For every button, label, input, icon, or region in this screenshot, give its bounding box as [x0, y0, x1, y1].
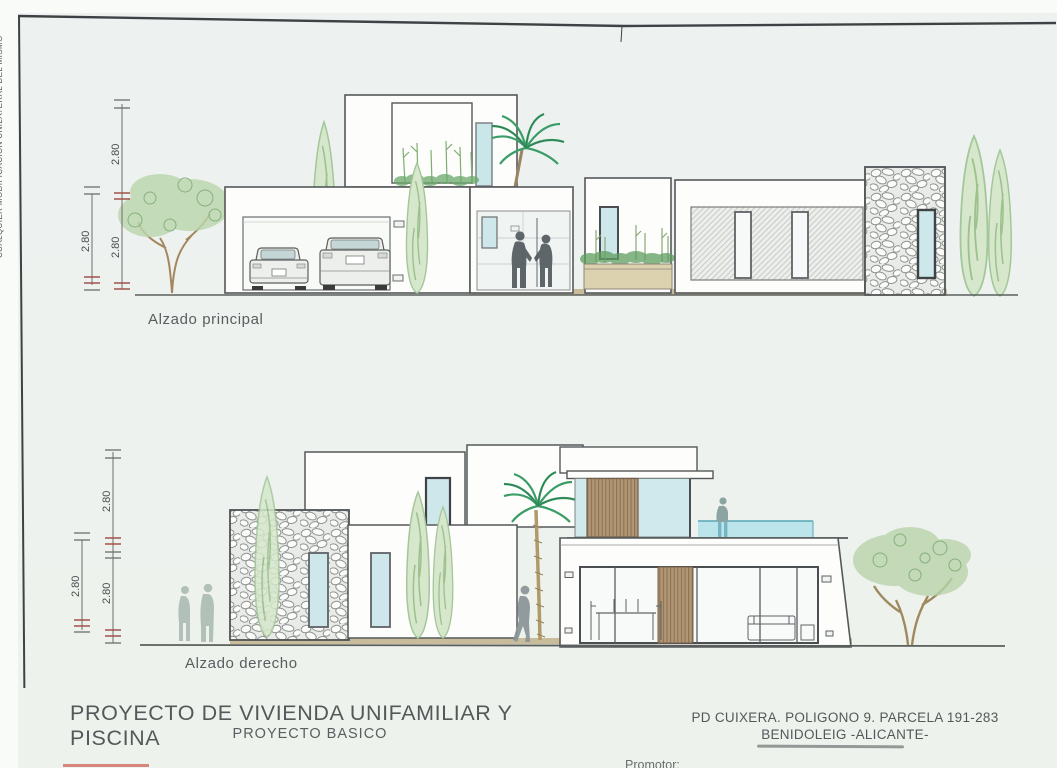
olive-tree	[853, 527, 971, 645]
cypress-tree	[989, 150, 1012, 296]
main-volume	[560, 538, 851, 647]
wood-slat-panel	[587, 479, 638, 538]
dimension-label: 2.80	[101, 491, 113, 512]
stone-pillar	[230, 510, 349, 640]
elevation-derecho: 2.80 2.80 2.80	[70, 445, 1005, 647]
side-volume	[580, 178, 675, 293]
terrace	[560, 447, 848, 538]
entrance-window	[482, 217, 497, 248]
wall-vent	[394, 221, 404, 227]
wood-slat-panel	[658, 567, 693, 643]
glazing	[580, 567, 818, 643]
window	[792, 212, 808, 278]
mid-volume	[348, 525, 517, 638]
planter-box	[584, 264, 672, 289]
dimension-label: 2.80	[110, 237, 122, 258]
elevation-label-principal: Alzado principal	[148, 311, 264, 328]
red-stamp-line	[63, 764, 149, 767]
project-location: PD CUIXERA. POLIGONO 9. PARCELA 191-283 …	[645, 709, 1045, 743]
facade-volume	[675, 180, 865, 293]
drawing-sheet: CUALQUIER MODIFICACION UNILATERAL DEL MI…	[0, 0, 1057, 768]
project-subtitle: PROYECTO BASICO	[70, 726, 550, 742]
cypress-tree	[960, 136, 987, 296]
dimension-label: 2.80	[101, 583, 113, 604]
roof-slab	[567, 471, 713, 479]
dimension-label: 2.80	[110, 144, 122, 165]
dimension-chain: 2.80 2.80 2.80	[80, 100, 130, 290]
entrance	[470, 187, 573, 293]
facade-panel	[691, 207, 863, 280]
upper-window	[476, 123, 492, 186]
cypress-tree	[255, 477, 279, 637]
window	[735, 212, 751, 278]
car-suv	[320, 238, 390, 290]
sheet-border	[18, 15, 1056, 768]
window	[371, 553, 390, 627]
location-line-1: PD CUIXERA. POLIGONO 9. PARCELA 191-283	[645, 709, 1045, 726]
window	[918, 210, 935, 278]
stone-pillar	[865, 167, 945, 295]
people-silhouettes	[178, 584, 214, 642]
elevation-principal: 2.80 2.80 2.80	[80, 95, 1018, 296]
promoter-label: Promotor:	[625, 758, 680, 768]
window	[309, 553, 328, 627]
pool	[698, 521, 813, 537]
wall-vent	[393, 275, 403, 281]
elevation-label-derecho: Alzado derecho	[185, 655, 298, 672]
olive-tree	[118, 174, 230, 293]
dimension-label: 2.80	[70, 576, 82, 597]
location-line-2: BENIDOLEIG -ALICANTE-	[645, 726, 1045, 743]
architectural-drawing: 2.80 2.80 2.80	[0, 0, 1057, 768]
ground-line	[140, 645, 1005, 646]
dimension-label: 2.80	[80, 231, 92, 252]
dimension-chain: 2.80 2.80 2.80	[70, 450, 121, 643]
